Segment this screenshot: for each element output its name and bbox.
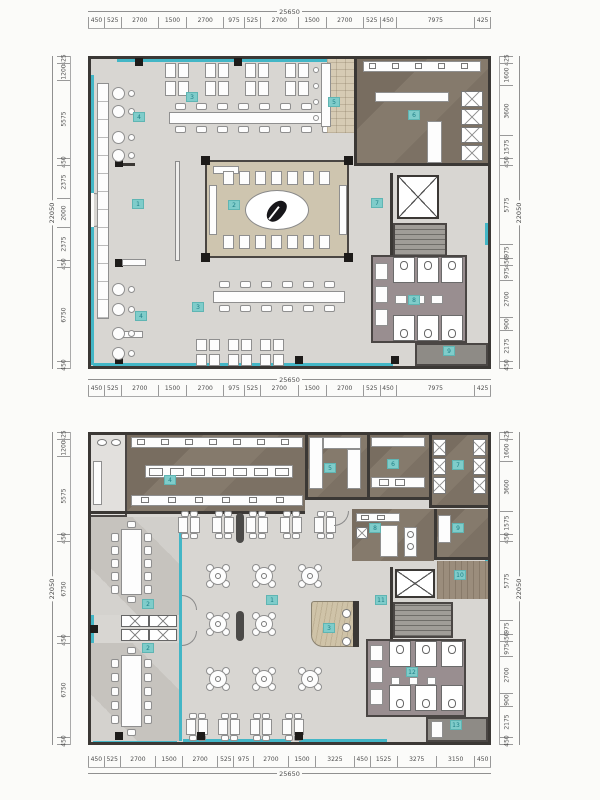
dim-segment: 6750	[57, 541, 70, 635]
equipment	[415, 63, 422, 69]
chair	[144, 659, 152, 668]
table	[241, 339, 252, 351]
interior-wall	[357, 163, 488, 166]
table	[245, 81, 256, 96]
side-table	[209, 185, 217, 235]
dim-segment: 2700	[260, 17, 297, 28]
chair	[111, 533, 119, 542]
toilet-stall	[441, 685, 463, 711]
table	[209, 339, 220, 351]
chair	[219, 281, 230, 288]
lower-floor-plan: 122345678910111213	[88, 432, 491, 745]
equipment	[275, 468, 289, 476]
interior-wall	[434, 557, 488, 560]
dim-segment: 1500	[155, 756, 182, 767]
table	[258, 517, 268, 533]
room-number-tag: 2	[228, 200, 240, 210]
room-number-tag: 7	[371, 198, 383, 208]
toilet	[396, 699, 404, 708]
booth-table	[112, 347, 125, 360]
sink	[377, 515, 385, 520]
dim-segment: 5575	[57, 456, 70, 534]
column	[234, 58, 242, 66]
chair	[181, 511, 189, 517]
room-number-tag: 4	[164, 475, 176, 485]
door-swing	[334, 511, 349, 526]
equipment	[149, 468, 163, 476]
table	[209, 354, 220, 366]
chair	[111, 546, 119, 555]
interior-wall	[434, 509, 437, 559]
table	[245, 63, 256, 78]
room-number-tag: 8	[408, 295, 420, 305]
curtain-wall	[299, 739, 387, 742]
dim-segment: 1575	[500, 135, 513, 157]
dim-segment: 1575	[500, 511, 513, 533]
dim-segment: 425	[500, 56, 513, 63]
door-swing	[182, 595, 197, 610]
table	[303, 235, 314, 249]
dim-segment: 2175	[500, 706, 513, 737]
dim-segment: 1500	[288, 756, 315, 767]
dim-segment: 975	[223, 17, 243, 28]
chair	[198, 713, 206, 719]
dim-segment: 525	[244, 17, 261, 28]
toilet	[424, 261, 432, 270]
dim-segment: 1500	[298, 385, 326, 396]
dim-segment: 975	[500, 641, 513, 655]
room-number-tag: 7	[452, 460, 464, 470]
chair	[111, 715, 119, 724]
dim-segment: 450	[88, 17, 104, 28]
table	[282, 719, 292, 735]
kitchen-island	[375, 92, 449, 102]
curtain-wall	[485, 223, 488, 245]
chair	[292, 511, 300, 517]
sink	[409, 677, 418, 685]
dim-segment: 975	[233, 756, 252, 767]
equipment	[438, 63, 445, 69]
dim-segment: 2700	[120, 756, 155, 767]
table-center	[261, 573, 267, 579]
chair	[230, 713, 238, 719]
dim-segment: 425	[57, 432, 70, 439]
dim-segment: 450	[88, 756, 104, 767]
table	[273, 339, 284, 351]
equipment	[137, 439, 145, 445]
dim-total: 22050	[513, 432, 524, 745]
shelving-rack	[433, 477, 446, 494]
dim-segment: 425	[474, 385, 491, 396]
dim-segment: 7975	[396, 385, 475, 396]
column	[135, 58, 143, 66]
stool	[313, 99, 319, 105]
chair	[301, 103, 312, 110]
dim-total: 25650	[88, 374, 491, 385]
kitchen-counter	[131, 437, 303, 448]
bar-stool	[342, 609, 351, 618]
table	[287, 171, 298, 185]
sink	[431, 295, 443, 304]
dim-segment: 450	[500, 258, 513, 265]
table	[230, 719, 240, 735]
column	[295, 732, 303, 740]
booth-table	[112, 149, 125, 162]
dim-segment: 450	[380, 17, 396, 28]
dim-segment: 2700	[326, 17, 363, 28]
stool	[313, 67, 319, 73]
chair	[282, 281, 293, 288]
chair	[181, 533, 189, 539]
chair	[262, 735, 270, 741]
table	[178, 517, 188, 533]
dim-total: 22050	[46, 56, 57, 369]
dim-strip-left-2: 220504251200557545067504506750450	[46, 432, 71, 745]
door-swing	[182, 631, 197, 646]
interior-wall	[429, 505, 488, 508]
drawing-sheet: 2565045052527001500270097552527001500270…	[0, 0, 600, 800]
folding-partition	[149, 629, 177, 641]
round-table	[301, 567, 319, 585]
room-number-tag: 3	[186, 92, 198, 102]
table	[280, 517, 290, 533]
vanity	[370, 667, 383, 683]
curtain-wall	[117, 59, 337, 62]
interior-wall	[429, 435, 432, 507]
dim-segment: 2700	[121, 17, 158, 28]
table	[258, 81, 269, 96]
room-number-tag: 6	[408, 110, 420, 120]
counter	[309, 437, 323, 489]
column	[90, 625, 98, 633]
dim-segment: 2700	[253, 756, 288, 767]
dim-segment: 1200	[57, 439, 70, 457]
chair	[230, 735, 238, 741]
chair	[317, 511, 325, 517]
booth-table	[112, 105, 125, 118]
chair	[217, 103, 228, 110]
chair	[190, 511, 198, 517]
shelving-rack	[433, 439, 446, 456]
bench	[431, 721, 443, 738]
sink	[111, 439, 121, 446]
table	[196, 339, 207, 351]
column	[115, 732, 123, 740]
dim-segments: 425120055754502375200023754506750450	[57, 56, 71, 369]
table	[246, 517, 256, 533]
toilet-stall	[415, 641, 437, 667]
toilet-stall	[393, 315, 415, 341]
chair	[240, 305, 251, 312]
room-number-tag: 12	[406, 667, 418, 677]
dim-segment: 3275	[397, 756, 436, 767]
booth-chair	[128, 306, 135, 313]
chair	[221, 735, 229, 741]
dim-segment: 2700	[260, 385, 297, 396]
toilet-stall	[417, 315, 439, 341]
chair	[224, 511, 232, 517]
upper-floor-plan: 12334456789	[88, 56, 491, 369]
table	[239, 235, 250, 249]
room-number-tag: 4	[135, 311, 147, 321]
dim-segment: 450	[88, 385, 104, 396]
table	[271, 171, 282, 185]
round-table	[301, 670, 319, 688]
chair	[249, 511, 257, 517]
dim-segment: 1525	[370, 756, 397, 767]
table	[273, 354, 284, 366]
elevator	[395, 569, 435, 598]
equipment	[276, 497, 284, 503]
equipment	[249, 497, 257, 503]
shelving-rack	[461, 145, 483, 161]
chair	[259, 103, 270, 110]
table	[165, 63, 176, 78]
chair	[217, 126, 228, 133]
dim-segment: 525	[104, 385, 121, 396]
table	[178, 63, 189, 78]
chair	[259, 126, 270, 133]
toilet-stall	[389, 685, 411, 711]
chair	[144, 546, 152, 555]
round-table	[209, 567, 227, 585]
counter	[347, 449, 361, 489]
equipment	[257, 439, 265, 445]
dim-segment: 6750	[57, 643, 70, 737]
chair	[317, 533, 325, 539]
toilet	[448, 261, 456, 270]
column	[295, 356, 303, 364]
booth-chair	[128, 152, 135, 159]
desk	[438, 515, 451, 543]
dim-segment: 3600	[500, 85, 513, 135]
table	[239, 171, 250, 185]
chair	[261, 281, 272, 288]
chair	[111, 687, 119, 696]
round-table	[255, 615, 273, 633]
bar-stool	[342, 637, 351, 646]
dim-segment: 525	[244, 385, 261, 396]
chair	[111, 585, 119, 594]
round-table	[209, 670, 227, 688]
dim-segment: 1500	[158, 17, 186, 28]
booth-chair	[128, 330, 135, 337]
toilet	[422, 699, 430, 708]
chair	[127, 647, 136, 654]
chair	[221, 713, 229, 719]
column	[197, 732, 205, 740]
long-table	[121, 529, 142, 595]
table-center	[261, 621, 267, 627]
dim-segment: 1500	[298, 17, 326, 28]
long-table	[121, 655, 142, 727]
table	[224, 517, 234, 533]
table	[298, 63, 309, 78]
equipment	[233, 439, 241, 445]
dim-segment: 3600	[500, 461, 513, 511]
chair	[258, 533, 266, 539]
table	[298, 81, 309, 96]
dim-segment: 2700	[500, 280, 513, 318]
prep-table	[427, 121, 442, 163]
equipment	[461, 63, 468, 69]
chair	[326, 533, 334, 539]
round-table	[255, 670, 273, 688]
sink-unit	[356, 527, 368, 539]
round-table	[255, 567, 273, 585]
shelving-rack	[461, 109, 483, 125]
interior-wall	[175, 161, 180, 261]
table	[205, 63, 216, 78]
chair	[253, 713, 261, 719]
chair	[258, 511, 266, 517]
chair	[280, 126, 291, 133]
chair	[144, 559, 152, 568]
table	[260, 339, 271, 351]
shelving-rack	[473, 458, 486, 475]
vanity	[370, 689, 383, 705]
toilet-stall	[389, 641, 411, 667]
chair	[189, 713, 197, 719]
table	[319, 171, 330, 185]
booth-chair	[128, 350, 135, 357]
chair	[303, 281, 314, 288]
interior-wall	[367, 435, 370, 497]
dim-segment: 2700	[186, 17, 223, 28]
toilet-stall	[393, 257, 415, 283]
chair	[285, 735, 293, 741]
room-number-tag: 4	[133, 112, 145, 122]
equipment	[369, 63, 376, 69]
interior-wall	[305, 497, 369, 500]
dim-segment: 425	[57, 56, 70, 63]
dim-segment: 525	[104, 756, 120, 767]
dim-segment: 5775	[500, 165, 513, 244]
dim-segment: 975	[500, 265, 513, 279]
room-number-tag: 3	[323, 623, 335, 633]
chair	[238, 103, 249, 110]
dim-strip-right-1: 4251600360015754505775975450975270090021…	[499, 56, 524, 369]
table	[258, 63, 269, 78]
staircase	[393, 602, 453, 638]
planter	[236, 611, 244, 641]
bar-stool	[342, 623, 351, 632]
dim-segment: 2700	[182, 756, 217, 767]
dim-segment: 7975	[396, 17, 475, 28]
dim-segments: 4251600360015754505775975450975270090021…	[499, 432, 513, 745]
equipment	[141, 497, 149, 503]
chair	[294, 713, 302, 719]
dim-segment: 450	[500, 361, 513, 369]
dim-segment: 1500	[158, 385, 186, 396]
column	[201, 156, 210, 165]
table	[285, 63, 296, 78]
stool	[313, 115, 319, 121]
dim-segment: 1600	[500, 63, 513, 86]
dim-total: 22050	[46, 432, 57, 745]
chair	[215, 533, 223, 539]
toilet	[424, 329, 432, 338]
dim-segment: 5575	[57, 80, 70, 157]
vanity	[370, 645, 383, 661]
dim-segment: 2700	[326, 385, 363, 396]
dim-segment: 525	[363, 17, 380, 28]
room-number-tag: 2	[142, 643, 154, 653]
chair	[144, 572, 152, 581]
shelving-rack	[433, 458, 446, 475]
table	[212, 517, 222, 533]
dim-segment: 3225	[315, 756, 354, 767]
toilet	[448, 329, 456, 338]
stool	[313, 83, 319, 89]
equipment	[185, 439, 193, 445]
dim-strip-right-2: 4251600360015754505775975450975270090021…	[499, 432, 524, 745]
table	[228, 339, 239, 351]
dim-segment: 450	[474, 756, 491, 767]
dim-segment: 2700	[500, 656, 513, 694]
chair	[111, 673, 119, 682]
shelving-rack	[473, 477, 486, 494]
column	[344, 253, 353, 262]
toilet	[400, 261, 408, 270]
room-number-tag: 1	[132, 199, 144, 209]
sink	[391, 677, 400, 685]
dim-segments: 4251200557545067504506750450	[57, 432, 71, 745]
room-number-tag: 2	[142, 599, 154, 609]
chair	[283, 533, 291, 539]
chair	[219, 305, 230, 312]
burner	[407, 531, 414, 538]
dim-segment: 5775	[500, 541, 513, 620]
chair	[144, 533, 152, 542]
toilet	[422, 645, 430, 654]
table	[205, 81, 216, 96]
table	[223, 235, 234, 249]
bench	[122, 259, 146, 266]
table	[271, 235, 282, 249]
elevator	[397, 175, 439, 219]
dim-segment: 450	[57, 534, 70, 541]
glazed-partition	[179, 517, 182, 741]
chair	[196, 126, 207, 133]
chair	[127, 521, 136, 528]
toilet	[448, 645, 456, 654]
dim-segment: 450	[500, 737, 513, 745]
dim-segment: 450	[380, 385, 396, 396]
counter	[323, 437, 361, 449]
chair	[238, 126, 249, 133]
table	[255, 235, 266, 249]
booth-table	[112, 303, 125, 316]
dim-segment: 450	[500, 634, 513, 641]
dim-segment: 525	[363, 385, 380, 396]
chair	[175, 126, 186, 133]
dim-segment: 450	[57, 737, 70, 745]
equipment	[395, 479, 405, 486]
chair	[253, 735, 261, 741]
table	[228, 354, 239, 366]
dim-segment: 450	[57, 158, 70, 165]
chair	[261, 305, 272, 312]
chair	[262, 713, 270, 719]
table	[260, 354, 271, 366]
booth-table	[112, 87, 125, 100]
chair	[240, 281, 251, 288]
sink	[395, 295, 407, 304]
table-center	[215, 676, 221, 682]
booth-chair	[128, 134, 135, 141]
table	[292, 517, 302, 533]
